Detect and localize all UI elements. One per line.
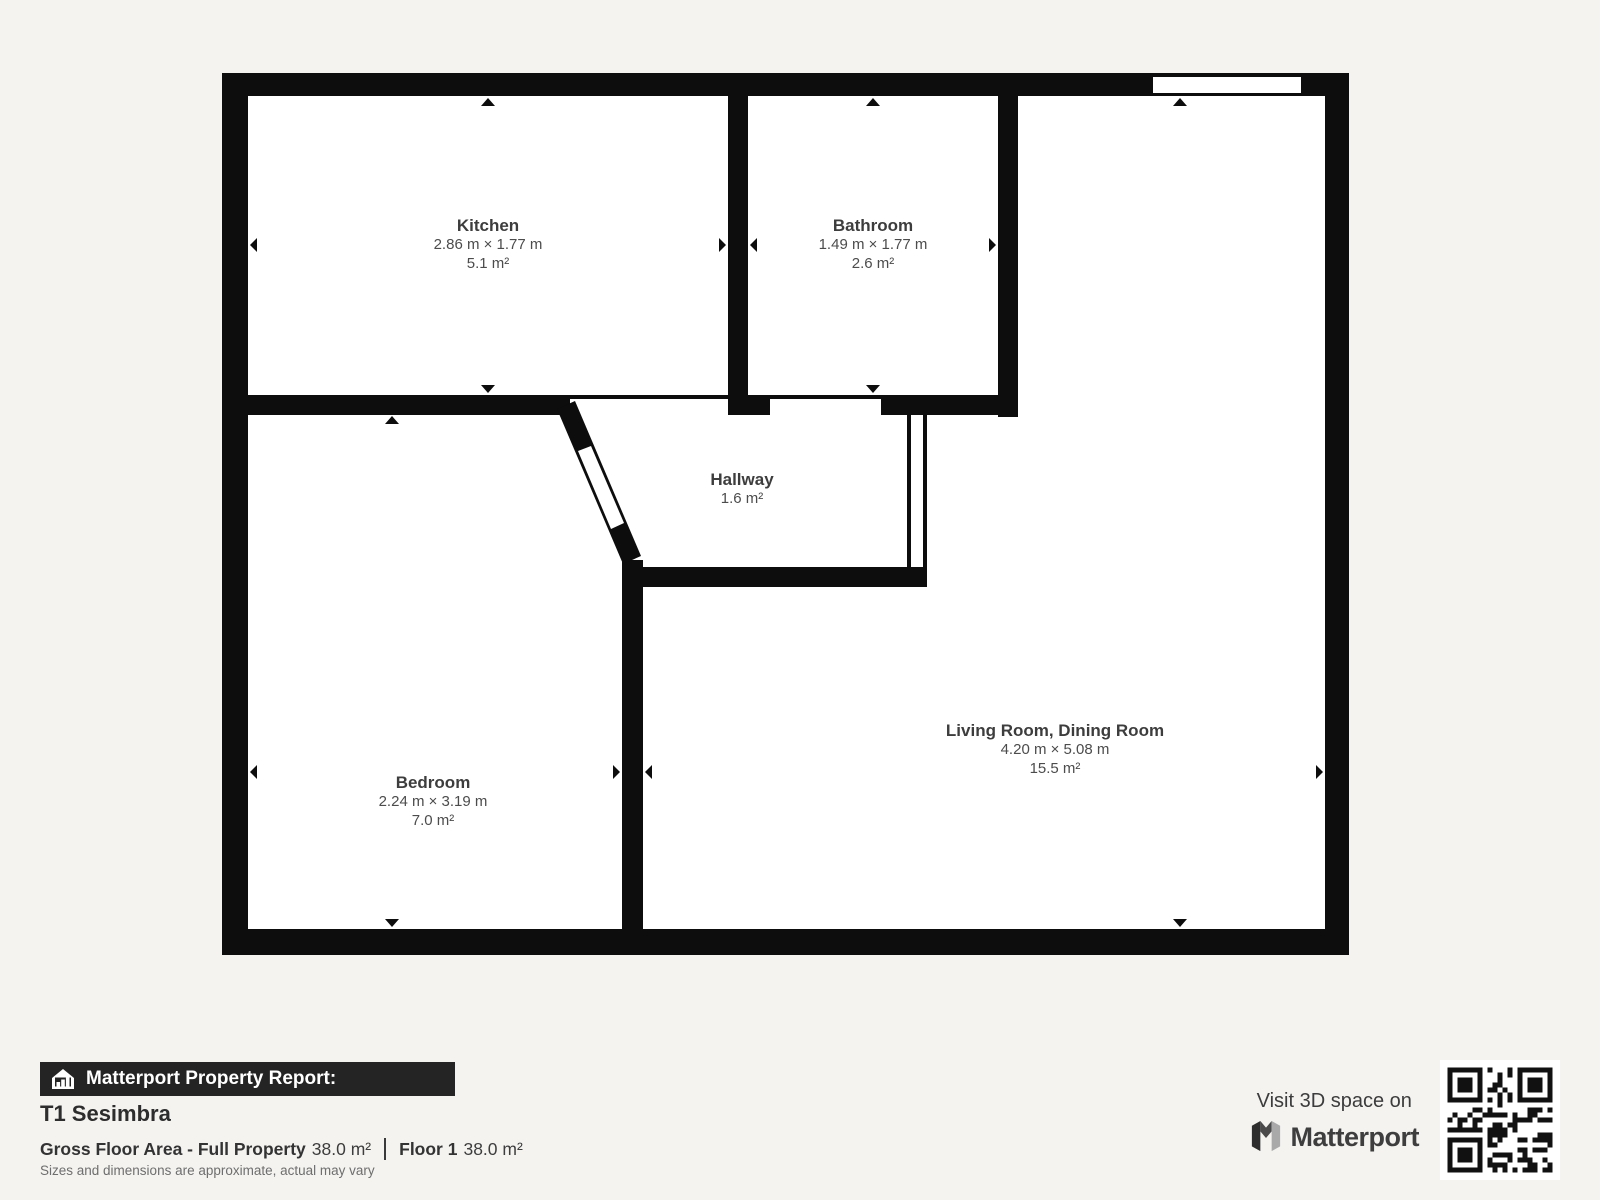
wall-bedroom-living [622,560,643,929]
floor-plan [0,0,1600,1200]
stats-divider [384,1138,386,1160]
floor-area-stats: Gross Floor Area - Full Property 38.0 m²… [40,1138,523,1160]
wall-kitchen-bathroom [728,96,748,415]
property-name: T1 Sesimbra [40,1101,171,1127]
gross-floor-area-label: Gross Floor Area - Full Property [40,1139,306,1160]
matterport-logo-icon [1250,1119,1282,1155]
door-opening-bathroom [770,395,881,399]
wall-hallway-living [622,567,927,587]
report-banner: Matterport Property Report: [40,1062,455,1096]
wall-under-kitchen-left [248,395,570,415]
door-opening-kitchen [570,395,728,399]
doorway-jamb-left [907,415,911,567]
qr-code [1440,1060,1560,1180]
visit-3d-text: Visit 3D space on [1250,1090,1420,1113]
window [1153,77,1301,93]
banner-label: Matterport Property Report: [86,1068,336,1090]
matterport-branding: Visit 3D space on Matterport [1250,1090,1420,1155]
floor-area [248,96,1325,929]
qr-pattern [1440,1060,1560,1180]
floor-label: Floor 1 [399,1139,457,1160]
wall-under-bathroom [881,395,1018,415]
doorway-jamb-right [923,415,927,567]
wall-bathroom-living [998,96,1018,417]
gross-floor-area-value: 38.0 m² [312,1139,371,1160]
house-chart-icon [52,1069,74,1089]
wall-under-kitchen-mid [728,395,770,415]
disclaimer-text: Sizes and dimensions are approximate, ac… [40,1163,375,1178]
matterport-wordmark: Matterport [1291,1122,1420,1153]
floor-value: 38.0 m² [463,1139,522,1160]
